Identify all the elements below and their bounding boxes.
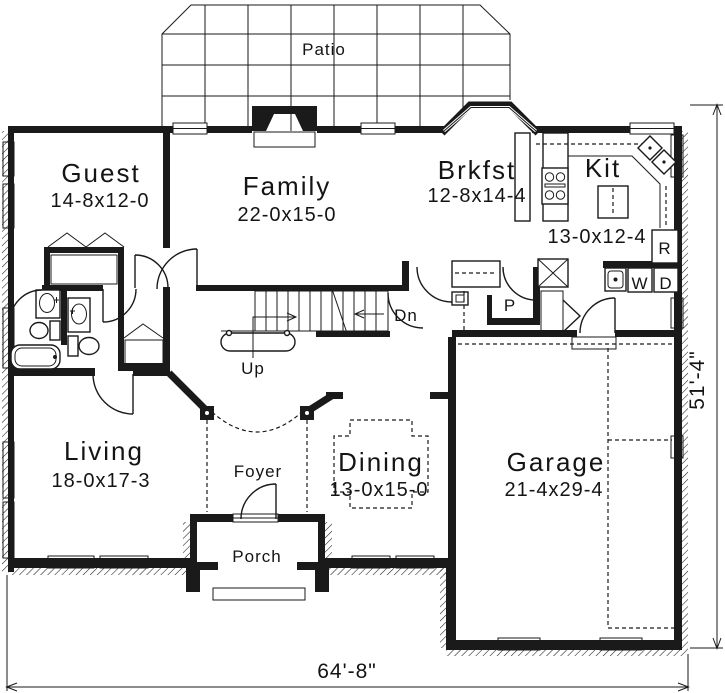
- bifold-door: [48, 233, 86, 247]
- refrigerator-label: R: [658, 239, 671, 258]
- vanity-sink-icon: [36, 290, 60, 318]
- chase-box: [538, 259, 568, 287]
- garage-size: 21-4x29-4: [504, 479, 603, 501]
- living-size: 18-0x17-3: [51, 470, 150, 492]
- laundry-sink-icon: [605, 268, 626, 291]
- overall-width: 64'-8": [317, 660, 377, 683]
- dining-room: Dining 13-0x15-0: [329, 420, 428, 508]
- dining-size: 13-0x15-0: [329, 479, 428, 501]
- floor-plan-drawing: Patio: [0, 0, 725, 693]
- bifold-door: [86, 233, 124, 247]
- dining-label: Dining: [338, 447, 424, 477]
- dryer: D: [654, 268, 678, 293]
- guest-label: Guest: [61, 158, 140, 188]
- foyer: Foyer Porch: [207, 412, 307, 566]
- security-panel: [452, 292, 468, 305]
- stair-break-line: [331, 286, 348, 336]
- hall-closet: [124, 324, 163, 364]
- pantry-label: P: [504, 296, 516, 315]
- stove-icon: [542, 168, 568, 204]
- washer: W: [628, 268, 652, 293]
- vanity-sink-icon: [68, 298, 90, 332]
- patio-label: Patio: [302, 40, 346, 59]
- kitchen-label: Kit: [585, 153, 621, 183]
- garage-step: [572, 337, 616, 349]
- overall-depth: 51'-4": [686, 350, 709, 410]
- patio: Patio: [162, 5, 510, 131]
- guest-size: 14-8x12-0: [50, 190, 149, 212]
- shelf-closet: [541, 291, 580, 332]
- porch-label: Porch: [232, 547, 281, 566]
- dryer-label: D: [659, 274, 672, 293]
- family-door-arc: [157, 249, 197, 289]
- closet-door: [124, 324, 163, 338]
- kitchen-peninsula: [515, 133, 530, 221]
- up-label: Up: [241, 359, 265, 378]
- refrigerator: R: [652, 230, 678, 263]
- down-label: Dn: [394, 306, 418, 325]
- breakfast-label: Brkfst: [438, 155, 516, 185]
- kitchen-size: 13-0x12-4: [547, 226, 646, 248]
- coat-closet: [452, 261, 500, 287]
- family-size: 22-0x15-0: [237, 204, 336, 226]
- breakfast-size: 12-8x14-4: [427, 185, 526, 207]
- living-door-arc: [93, 374, 133, 414]
- bay-window: [442, 105, 538, 133]
- fireplace: [252, 106, 317, 147]
- stair-railing: [221, 333, 295, 351]
- floor-plan-page: Patio: [0, 0, 725, 693]
- hall-door-arc: [417, 267, 452, 302]
- arch-opening: [212, 412, 302, 432]
- kitchen-island: [598, 186, 628, 218]
- guest-closet: [44, 233, 124, 287]
- down-arrow: [355, 310, 384, 318]
- toilet-icon: [68, 336, 99, 356]
- porch-step: [213, 588, 305, 600]
- garage-room: Garage 21-4x29-4: [458, 344, 676, 628]
- foyer-label: Foyer: [234, 462, 282, 481]
- bathtub-icon: [11, 345, 60, 369]
- washer-label: W: [631, 274, 648, 293]
- family-label: Family: [243, 171, 332, 201]
- guest-door-arc: [135, 255, 168, 288]
- toilet-icon: [30, 321, 60, 340]
- garage-door-arc: [580, 298, 615, 333]
- garage-label: Garage: [507, 447, 606, 477]
- living-label: Living: [64, 436, 144, 466]
